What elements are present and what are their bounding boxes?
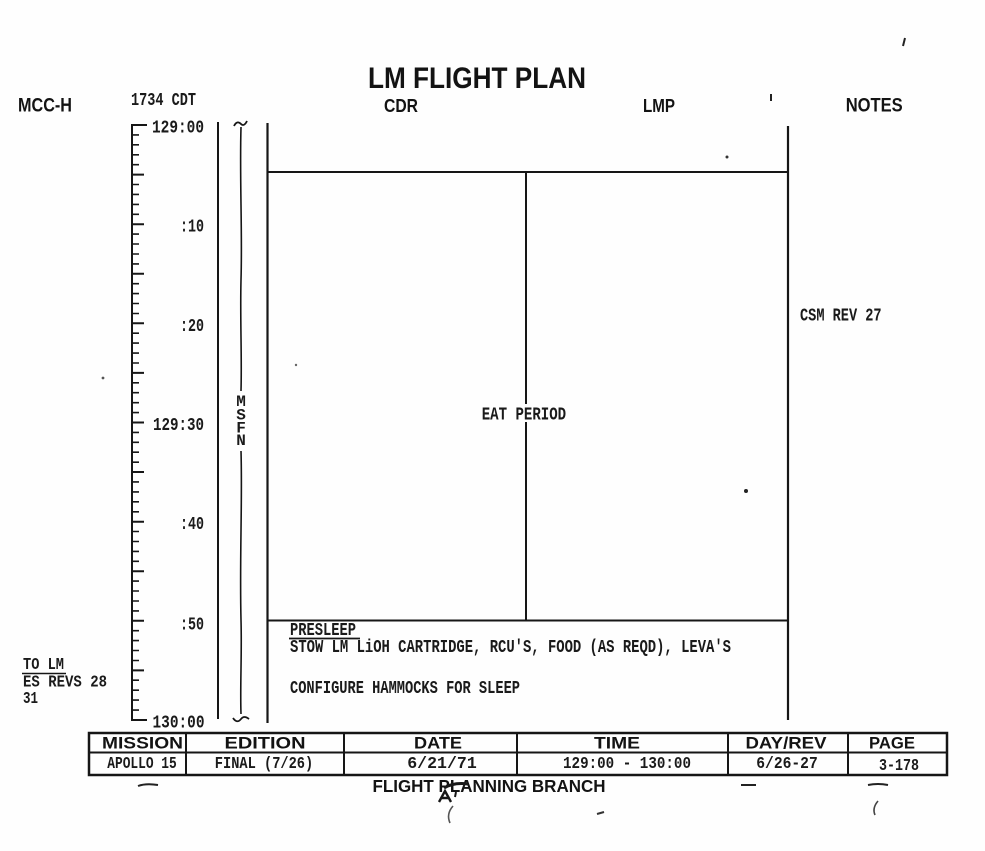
svg-text:129:00: 129:00 — [152, 119, 204, 139]
svg-text::50: :50 — [180, 616, 204, 636]
svg-text:31: 31 — [23, 689, 38, 708]
svg-text:129:00 - 130:00: 129:00 - 130:00 — [563, 755, 691, 774]
svg-text::20: :20 — [180, 317, 204, 337]
svg-text:PAGE: PAGE — [869, 735, 915, 753]
svg-text:N: N — [236, 432, 246, 450]
svg-text::40: :40 — [180, 515, 204, 535]
svg-text:EDITION: EDITION — [225, 735, 306, 753]
svg-text:FINAL (7/26): FINAL (7/26) — [215, 755, 313, 774]
svg-text:3-178: 3-178 — [879, 757, 919, 776]
svg-text:DATE: DATE — [414, 735, 462, 753]
svg-text:TO LM: TO LM — [23, 655, 64, 674]
svg-text:6/21/71: 6/21/71 — [407, 755, 477, 774]
svg-text:LM FLIGHT PLAN: LM FLIGHT PLAN — [368, 62, 586, 95]
svg-text:6/26-27: 6/26-27 — [756, 755, 818, 774]
svg-text:CSM REV 27: CSM REV 27 — [800, 307, 882, 327]
svg-text:130:00: 130:00 — [153, 714, 205, 734]
svg-text:DAY/REV: DAY/REV — [746, 735, 827, 753]
svg-text:NOTES: NOTES — [846, 95, 903, 116]
svg-text:LMP: LMP — [643, 95, 675, 116]
svg-text:MISSION: MISSION — [102, 735, 183, 753]
svg-text:FLIGHT PLANNING BRANCH: FLIGHT PLANNING BRANCH — [373, 776, 606, 796]
svg-text:MCC-H: MCC-H — [18, 96, 72, 117]
svg-text:129:30: 129:30 — [153, 416, 204, 436]
svg-text:EAT PERIOD: EAT PERIOD — [482, 406, 567, 426]
svg-text:TIME: TIME — [594, 735, 640, 753]
svg-text:1734 CDT: 1734 CDT — [131, 91, 196, 111]
svg-text::10: :10 — [180, 218, 204, 238]
svg-text:APOLLO 15: APOLLO 15 — [107, 755, 177, 774]
svg-text:CONFIGURE HAMMOCKS FOR SLEEP: CONFIGURE HAMMOCKS FOR SLEEP — [290, 679, 520, 699]
svg-text:STOW LM LiOH CARTRIDGE, RCU'S,: STOW LM LiOH CARTRIDGE, RCU'S, FOOD (AS … — [290, 638, 731, 658]
svg-text:CDR: CDR — [384, 95, 418, 116]
